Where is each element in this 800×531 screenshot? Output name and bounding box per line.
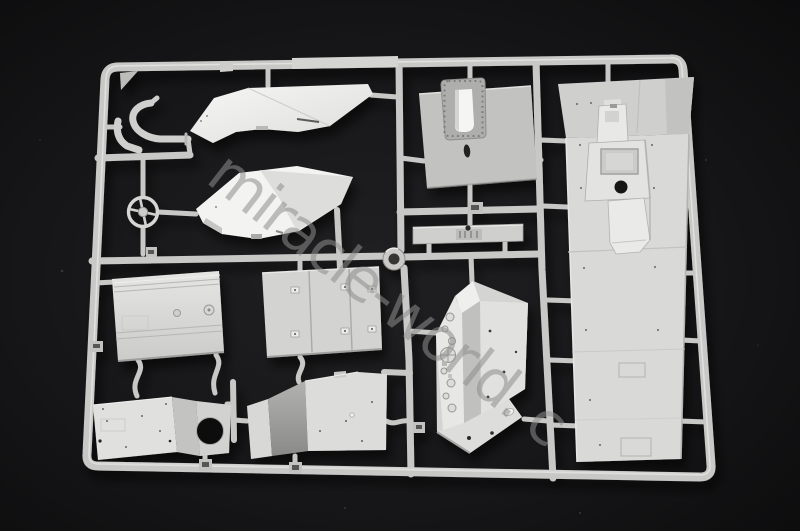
part-engine-deck-panel — [112, 271, 224, 361]
photo-stage: miracle-world. c — [0, 0, 800, 531]
part-axle-strip — [413, 224, 523, 244]
part-fan-housing-panel — [93, 397, 231, 460]
sprue-photo: miracle-world. c — [0, 0, 800, 531]
part-hatch-plate — [419, 78, 537, 188]
